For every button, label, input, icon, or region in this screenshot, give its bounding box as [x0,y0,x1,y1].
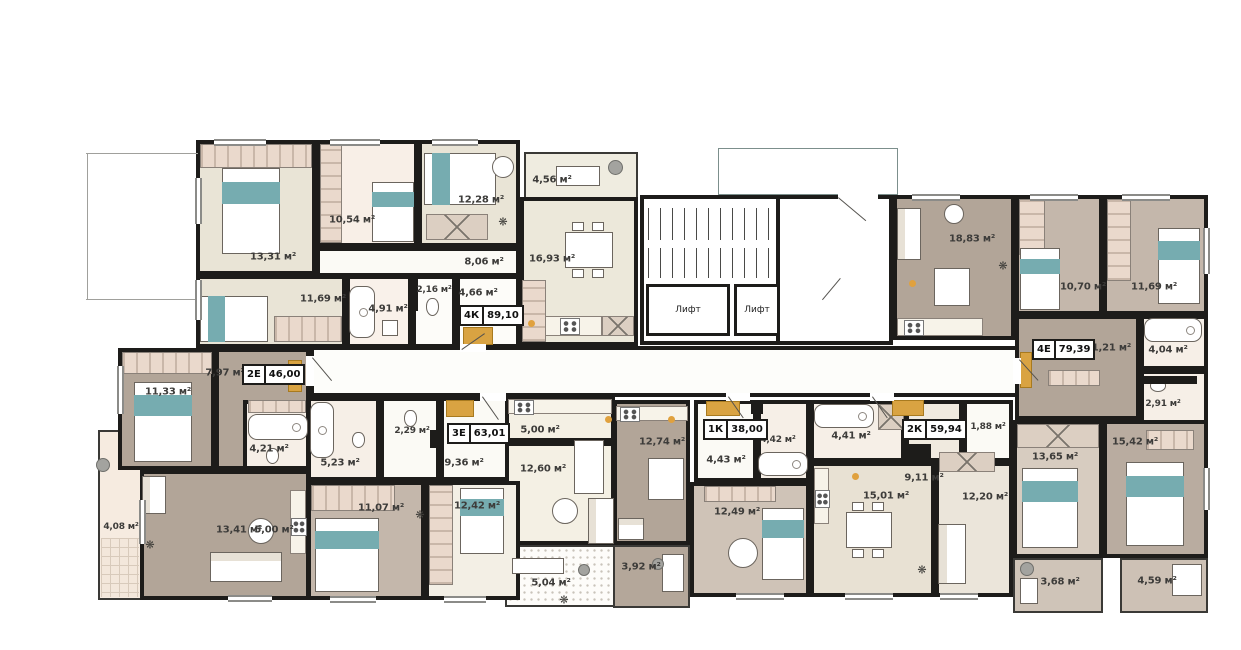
wardrobe-icon [704,486,776,502]
chair-icon [852,502,864,511]
bed-icon [460,488,504,554]
bed-icon [1022,468,1078,548]
room-area-label: 18,83 м² [949,234,995,245]
plant-icon: ❋ [145,539,154,552]
apartment-badge-2e: 2Е 46,00 [242,364,305,385]
entrance-lobby [776,195,893,345]
armchair-icon [618,518,644,540]
room-area-label: 9,11 м² [904,473,943,484]
room-area-label: 10,54 м² [329,215,375,226]
apartment-type: 4Е [1034,341,1056,358]
washing-machine-icon [382,320,398,336]
washing-machine-icon [96,458,110,472]
room-area-label: 10,70 м² [1060,282,1106,293]
room-area-label: 4,21 м² [249,444,288,455]
chair-icon [872,549,884,558]
chair-icon [592,222,604,231]
bathtub-icon [310,402,334,458]
room-area-label: 11,69 м² [300,294,346,305]
stove-icon [904,320,924,336]
lamp-icon [605,416,612,423]
vent-shaft [430,430,442,448]
apartment-badge-4e: 4Е 79,39 [1032,339,1095,360]
vent-shaft [751,400,763,414]
rug-icon [552,498,578,524]
bathtub-icon [248,414,308,440]
bench-icon [662,554,684,592]
window [432,139,478,146]
elevator-2-label: Лифт [744,305,770,315]
dining-table-icon [934,268,970,306]
room-area-label: 12,28 м² [458,195,504,206]
room-area-label: 2,29 м² [394,426,429,436]
toilet-icon [352,432,365,448]
chair-icon [872,502,884,511]
elevator-1-label: Лифт [675,305,701,315]
window [139,500,146,544]
stairs-icon [648,208,772,240]
balcony-area-label: 4,59 м² [1137,576,1176,587]
apartment-type: 1К [705,421,728,438]
door-gap [306,356,314,386]
stove-icon [560,318,580,335]
room-area-label: 11,69 м² [1131,282,1177,293]
wardrobe-icon [248,400,306,413]
plant-icon: ❋ [498,216,507,229]
window [1030,194,1078,201]
floor-plan: Лифт Лифт [0,0,1241,650]
stove-icon [620,407,640,422]
bathtub-icon [1144,318,1202,342]
room-area-label: 7,97 м² [205,368,244,379]
room-area-label: 9,36 м² [444,458,483,469]
bed-icon [372,182,414,242]
apartment-type: 2К [904,421,927,438]
lamp-icon [668,416,675,423]
balcony-area-label: 5,04 м² [531,578,570,589]
apartment-total-area: 89,10 [484,307,522,324]
plant-icon: ❋ [917,564,926,577]
bathtub-icon [814,404,874,428]
wardrobe-icon [1017,424,1099,448]
toilet-icon [426,298,439,316]
room-area-label: 4,43 м² [706,455,745,466]
entry-mat [446,400,474,417]
stove-icon [514,400,534,415]
apartment-badge-3e: 3Е 63,01 [447,423,510,444]
room-area-label: 15,42 м² [1112,437,1158,448]
apartment-total-area: 46,00 [266,366,304,383]
bed-icon [1158,228,1200,304]
window [1203,228,1210,274]
room-area-label: 2,16 м² [416,285,451,295]
bed-icon [315,518,379,592]
window [845,593,893,600]
room-area-label: 4,04 м² [1148,345,1187,356]
room-area-label: 1,88 м² [970,422,1005,432]
wardrobe-icon [602,316,634,336]
apartment-total-area: 79,39 [1056,341,1094,358]
apartment-total-area: 38,00 [728,421,766,438]
lamp-icon [852,473,859,480]
entry-mat [892,400,924,416]
washing-machine-icon [1020,562,1034,576]
lamp-icon [909,280,916,287]
wardrobe-icon [274,316,342,342]
chair-icon [852,549,864,558]
room-4e-hall [1015,315,1140,420]
chair-icon [572,269,584,278]
balcony-area-label: 3,92 м² [621,562,660,573]
room-area-label: 11,07 м² [358,503,404,514]
bed-icon [1126,462,1184,546]
window [330,139,380,146]
window [736,593,784,600]
balcony-area-label: 3,68 м² [1040,577,1079,588]
room-area-label: 5,23 м² [320,458,359,469]
sofa-bed-icon [762,508,804,580]
elevator-2: Лифт [734,284,780,336]
window [1122,194,1170,201]
room-area-label: 4,66 м² [458,288,497,299]
tv-icon [492,156,514,178]
room-area-label: 13,31 м² [250,252,296,263]
room-area-label: 12,42 м² [454,501,500,512]
wardrobe-icon [1048,370,1100,386]
dining-table-icon [648,458,684,500]
room-area-label: 16,93 м² [529,254,575,265]
bench-icon [1020,578,1038,604]
apartment-type: 3Е [449,425,471,442]
window [195,178,202,224]
sofa-icon [938,524,966,584]
wardrobe-icon [200,144,312,168]
sofa-icon [897,208,921,260]
apartment-badge-4k: 4К 89,10 [459,305,524,326]
stairs-icon [648,248,772,278]
plant-icon: ❋ [998,260,1007,273]
room-area-label: 12,74 м² [639,437,685,448]
room-area-label: 12,49 м² [714,507,760,518]
room-area-label: 5,00 м² [254,525,293,536]
window [330,596,376,603]
bathtub-icon [758,452,808,476]
window [117,366,124,414]
apartment-badge-1k: 1К 38,00 [703,419,768,440]
room-area-label: 15,01 м² [863,491,909,502]
window [940,593,978,600]
apartment-type: 2Е [244,366,266,383]
wardrobe-icon [522,280,546,342]
room-area-label: 8,06 м² [464,257,503,268]
room-area-label: 4,91 м² [368,304,407,315]
balcony-area-label: 4,08 м² [103,522,138,532]
room-area-label: 12,60 м² [520,464,566,475]
washing-machine-icon [578,564,590,576]
dining-table-icon [846,512,892,548]
chair-icon [592,269,604,278]
apartment-type: 4К [461,307,484,324]
window [228,595,272,602]
neighbor-line [87,153,88,300]
window [1203,468,1210,510]
entrance-door-gap [838,192,878,201]
tv-icon [944,204,964,224]
sofa-icon [588,498,614,544]
wardrobe-icon [1107,199,1131,281]
bench-icon [512,558,564,574]
apartment-badge-2k: 2К 59,94 [902,419,967,440]
lamp-icon [528,320,535,327]
common-corridor [310,346,1030,397]
room-area-label: 12,20 м² [962,492,1008,503]
wardrobe-icon [1019,199,1045,255]
vent-shaft [1143,376,1197,384]
stove-icon [815,490,830,508]
elevator-1: Лифт [646,284,730,336]
plant-icon: ❋ [415,509,424,522]
window [444,596,486,603]
sofa-icon [210,552,282,582]
window [214,139,266,146]
rug-icon [728,538,758,568]
room-area-label: 13,65 м² [1032,452,1078,463]
bed-icon [222,168,280,254]
dining-table-icon [574,440,604,494]
neighbor-line [86,153,198,154]
room-area-label: 4,41 м² [831,431,870,442]
room-area-label: 11,33 м² [145,387,191,398]
wardrobe-icon [320,144,342,243]
stool-icon [608,160,623,175]
room-area-label: 5,00 м² [520,425,559,436]
chair-icon [572,222,584,231]
bed-icon [1020,248,1060,310]
neighbor-line [86,299,198,300]
bed-icon [200,296,268,342]
plant-icon: ❋ [559,594,568,607]
balcony-area-label: 4,56 м² [532,175,571,186]
wardrobe-icon [939,452,995,472]
room-area-label: 2,91 м² [1145,399,1180,409]
wardrobe-icon [122,352,212,374]
window [195,280,202,320]
wardrobe-icon [429,485,453,585]
toilet-icon [404,410,417,427]
apartment-total-area: 59,94 [927,421,965,438]
vent-shaft [905,444,931,458]
entrance-canopy [718,148,898,195]
wardrobe-icon [426,214,488,240]
balcony-2e-tile-floor [101,538,139,597]
apartment-total-area: 63,01 [471,425,509,442]
entry-mat [706,401,740,416]
window [912,194,960,201]
